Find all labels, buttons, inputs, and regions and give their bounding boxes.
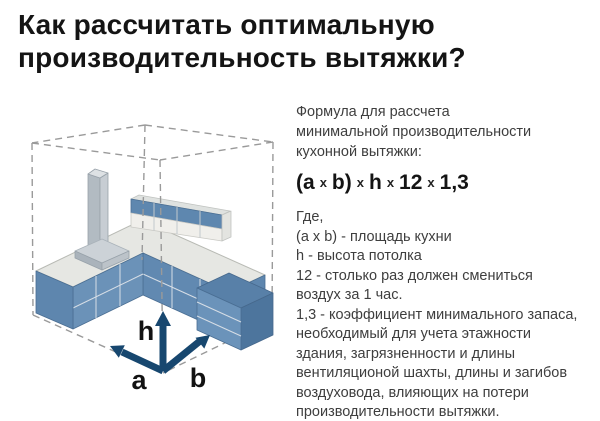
formula-term-13: 1,3 (440, 171, 469, 195)
multiply-sign: x (357, 175, 364, 190)
formula: (axb)xhx12x1,3 (296, 171, 592, 195)
formula-term-h: h (369, 171, 382, 195)
legend-area: (a x b) - площадь кухни (296, 228, 592, 248)
axis-label-b: b (190, 363, 207, 393)
axis-arrows-icon: h a b (110, 311, 210, 395)
kitchen-room-diagram: h a b (0, 88, 300, 421)
formula-term-b-close: b) (332, 171, 352, 195)
formula-legend: Где, (a x b) - площадь кухни h - высота … (296, 208, 592, 421)
multiply-sign: x (387, 175, 394, 190)
axis-label-h: h (138, 316, 155, 346)
axis-label-a: a (131, 365, 147, 395)
multiply-sign: x (320, 175, 327, 190)
base-cabinets-icon (36, 220, 273, 350)
formula-term-a-open: (a (296, 171, 315, 195)
formula-term-12: 12 (399, 171, 422, 195)
page-title: Как рассчитать оптимальную производитель… (18, 8, 583, 74)
multiply-sign: x (427, 175, 434, 190)
legend-ceiling-height: h - высота потолка (296, 247, 592, 267)
legend-coefficient: 1,3 - коэффициент минимального запаса, н… (296, 306, 592, 421)
formula-intro-text: Формула для рассчета минимальной произво… (296, 102, 592, 162)
explanation-panel: Формула для рассчета минимальной произво… (296, 102, 592, 421)
infographic: Как рассчитать оптимальную производитель… (0, 0, 600, 421)
legend-where: Где, (296, 208, 592, 228)
legend-air-exchange: 12 - столько раз должен смениться воздух… (296, 267, 592, 306)
cooker-hood-icon (75, 169, 129, 270)
